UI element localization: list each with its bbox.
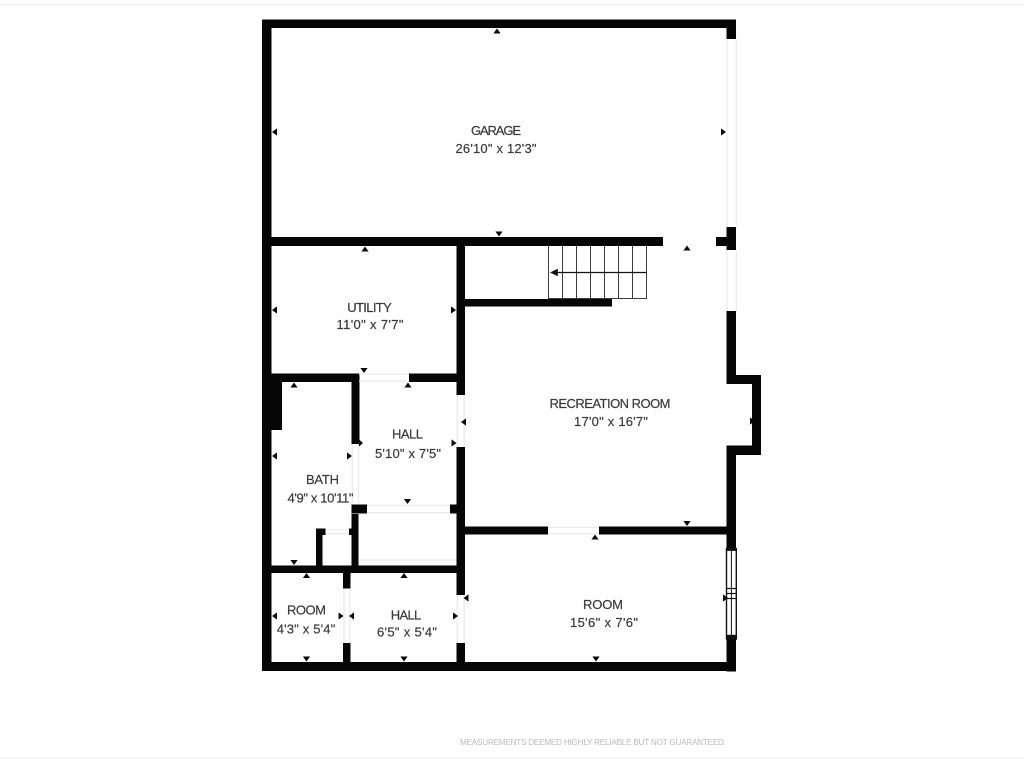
svg-text:UTILITY: UTILITY xyxy=(347,300,392,315)
svg-text:15'6" x 7'6": 15'6" x 7'6" xyxy=(570,615,638,630)
svg-text:BATH: BATH xyxy=(306,472,339,487)
svg-text:ROOM: ROOM xyxy=(583,597,623,612)
svg-text:MEASUREMENTS DEEMED HIGHLY REL: MEASUREMENTS DEEMED HIGHLY RELIABLE BUT … xyxy=(460,738,726,747)
svg-text:5'10" x 7'5": 5'10" x 7'5" xyxy=(375,446,441,461)
svg-text:HALL: HALL xyxy=(392,427,423,442)
svg-text:4'9" x 10'11": 4'9" x 10'11" xyxy=(288,491,354,506)
svg-text:6'5" x 5'4": 6'5" x 5'4" xyxy=(377,625,437,640)
svg-text:17'0" x 16'7": 17'0" x 16'7" xyxy=(574,414,648,429)
svg-text:ROOM: ROOM xyxy=(287,603,326,618)
svg-text:4'3" x 5'4": 4'3" x 5'4" xyxy=(277,622,336,637)
svg-text:HALL: HALL xyxy=(391,608,422,623)
svg-text:GARAGE: GARAGE xyxy=(471,123,521,138)
svg-text:RECREATION ROOM: RECREATION ROOM xyxy=(550,396,671,411)
svg-text:11'0" x 7'7": 11'0" x 7'7" xyxy=(337,317,404,332)
svg-text:26'10" x 12'3": 26'10" x 12'3" xyxy=(456,141,537,156)
